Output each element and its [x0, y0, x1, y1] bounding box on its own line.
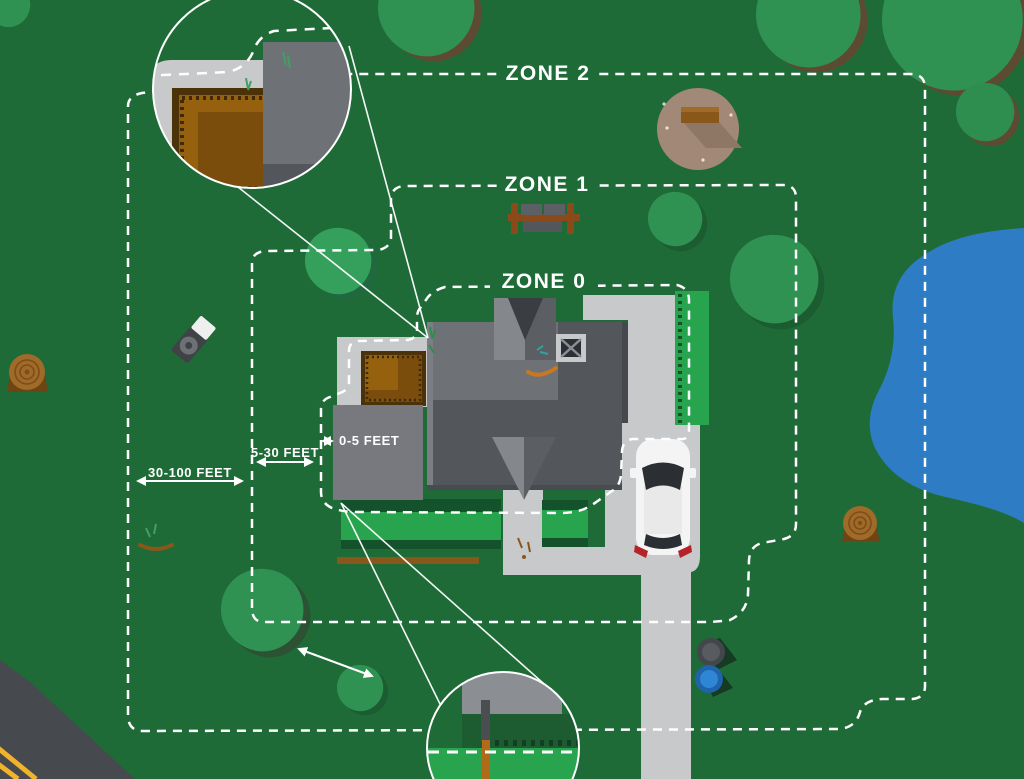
wood-deck: [361, 351, 426, 406]
defensible-space-diagram: ZONE 2 ZONE 1 ZONE 0 30-100 FEET 5-30 FE…: [0, 0, 1024, 779]
magnified-downspout: [481, 700, 490, 742]
zone2-label: ZONE 2: [497, 58, 598, 88]
car-mirror: [689, 468, 696, 478]
zone0-distance-label: 0-5 FEET: [339, 433, 399, 448]
zone1-distance-label: 5-30 FEET: [251, 445, 319, 460]
zone2-distance: 30-100 FEET: [138, 465, 242, 481]
diagram-svg: ZONE 2 ZONE 1 ZONE 0 30-100 FEET 5-30 FE…: [0, 0, 1024, 779]
car-roof: [644, 486, 682, 534]
zone1-distance: 5-30 FEET: [251, 445, 319, 462]
zone1-label-text: ZONE 1: [505, 173, 590, 196]
car-mirror: [630, 468, 637, 478]
car: [630, 439, 696, 558]
hedge-right: [675, 291, 709, 425]
magnified-shade: [462, 714, 580, 748]
zone2-distance-label: 30-100 FEET: [148, 465, 232, 480]
left-wing-roof: [333, 405, 423, 500]
garden-bed: [542, 500, 588, 547]
zone1-label: ZONE 1: [500, 170, 595, 198]
zone0-label: ZONE 0: [490, 266, 598, 293]
front-gable: [494, 298, 556, 360]
chimney: [556, 334, 586, 362]
zone2-label-text: ZONE 2: [506, 62, 591, 85]
zone0-label-text: ZONE 0: [502, 270, 587, 293]
